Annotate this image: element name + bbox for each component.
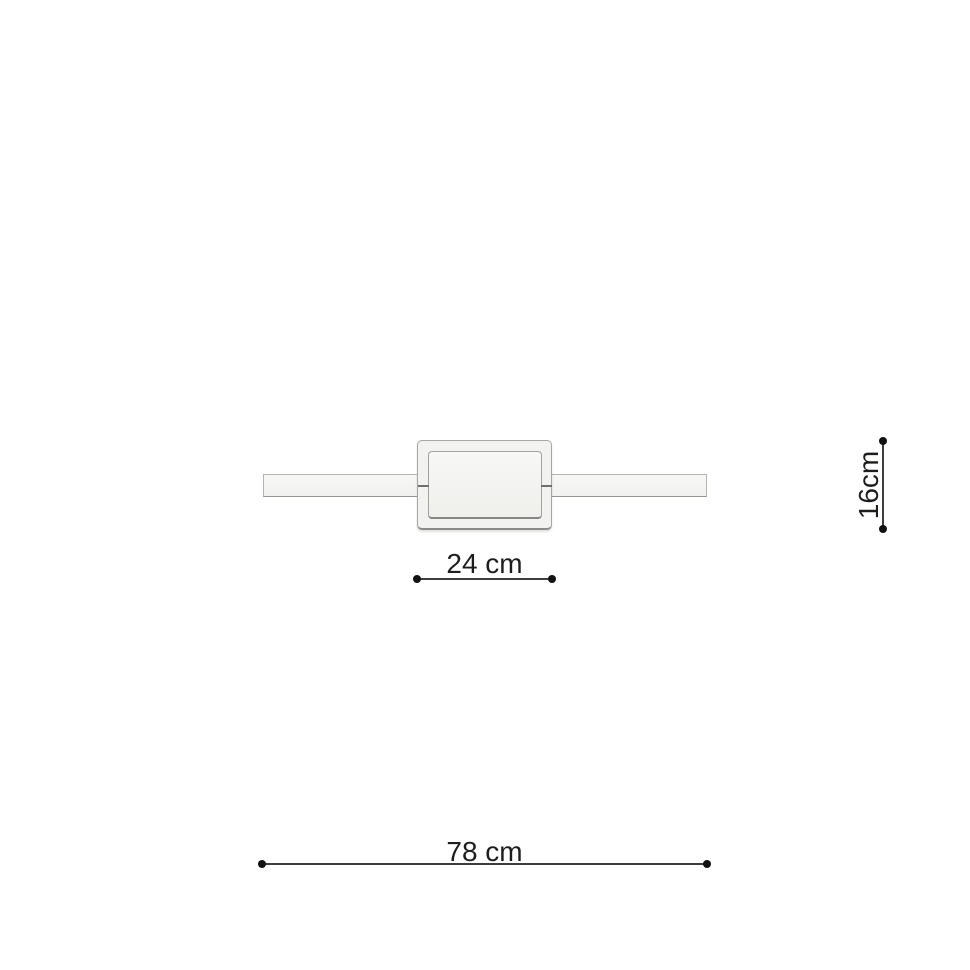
dimension-dot bbox=[879, 525, 887, 533]
dimension-dot bbox=[258, 860, 266, 868]
height-dimension-label: 16cm bbox=[855, 451, 883, 519]
length-dimension-label: 78 cm bbox=[262, 838, 707, 866]
seam-line-right bbox=[541, 485, 552, 487]
seam-line-left bbox=[418, 485, 429, 487]
dimension-dot bbox=[413, 575, 421, 583]
dimension-dot bbox=[879, 437, 887, 445]
dimension-dot bbox=[703, 860, 711, 868]
lamp-canopy-inner bbox=[428, 451, 542, 519]
width-dimension-label: 24 cm bbox=[417, 550, 552, 578]
dimension-dot bbox=[548, 575, 556, 583]
